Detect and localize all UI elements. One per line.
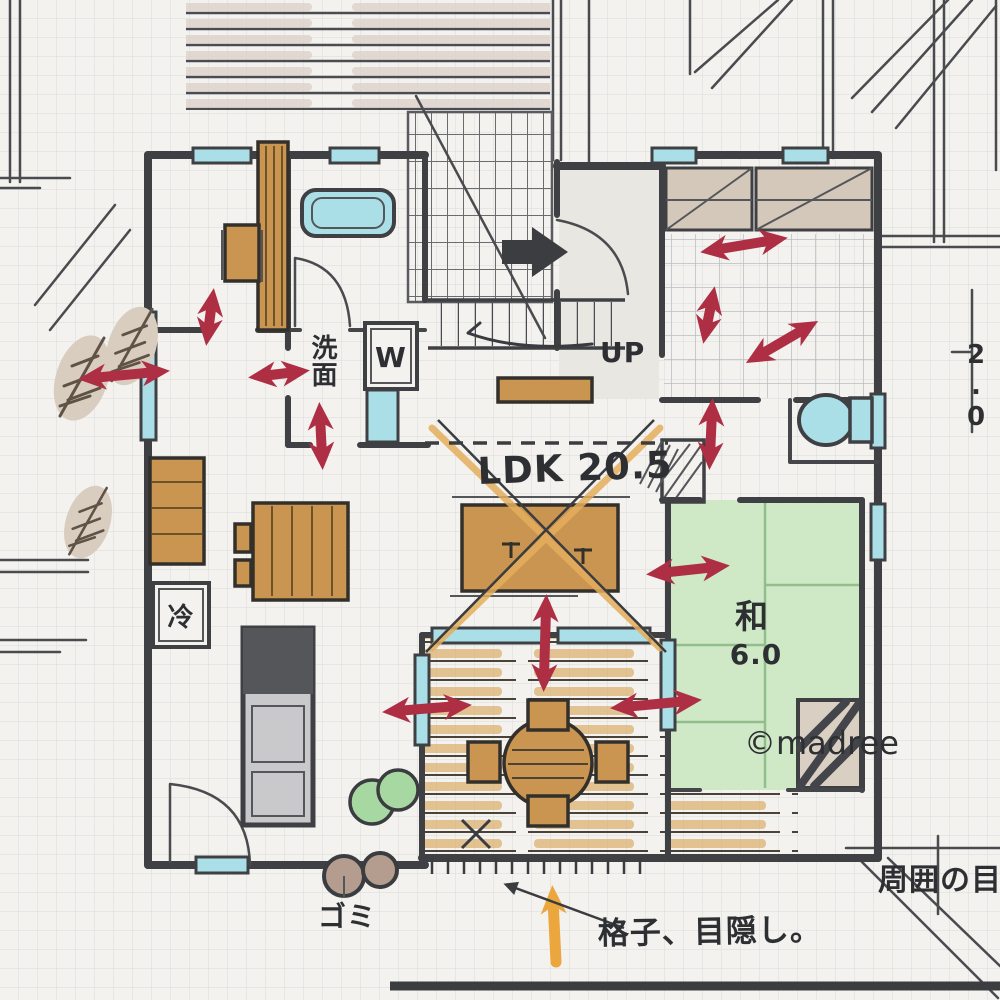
washing-machine-box: W [365,323,417,389]
flow-arrow [544,608,546,678]
flow-arrow [706,300,712,330]
ldk-room-label: LDK 20.5 [477,443,674,493]
washroom-label: 洗面 [307,334,337,388]
flow-arrow [660,567,716,573]
kitchen-counter [243,628,313,825]
bathtub [302,190,394,236]
tatami-name-label: 和 [735,597,769,636]
flow-arrow [710,412,712,456]
flow-arrow [396,706,458,711]
trash-label: ゴミ [318,900,376,933]
flow-arrow [624,701,688,707]
flow-arrow [208,302,212,332]
fridge-label: 冷 [167,602,194,633]
approach-deck [186,2,550,110]
privacy-note-label: 格子、目隠し。 [598,912,823,952]
bedroom-desk [222,225,262,282]
stair-treads [428,302,624,346]
watermark: ©madree [744,724,899,762]
flow-arrow [320,416,322,456]
floor-plan-page: W 冷 [0,0,1000,1000]
neighbor-note-label: 周囲の目線 [878,863,1000,898]
stairs-up-label: UP [600,336,645,369]
flow-arrow [92,372,156,378]
tatami-size-label: 6.0 [730,638,783,671]
toilet [799,395,872,445]
privacy-highlight-arrow-icon [553,900,556,962]
shoe-bench [498,378,592,402]
kitchen-island [235,503,348,600]
refrigerator-box: 冷 [153,583,209,647]
washer-label: W [375,341,407,374]
floor-plan-sketch: W 冷 [0,0,1000,1000]
bedroom2-floor-grid [664,234,878,398]
flow-arrow [262,372,296,376]
futon-closets [666,168,872,230]
pantry-shelf [150,458,204,564]
edge-dimension-label: 2.0 [961,340,991,433]
engawa-floor [670,792,798,854]
